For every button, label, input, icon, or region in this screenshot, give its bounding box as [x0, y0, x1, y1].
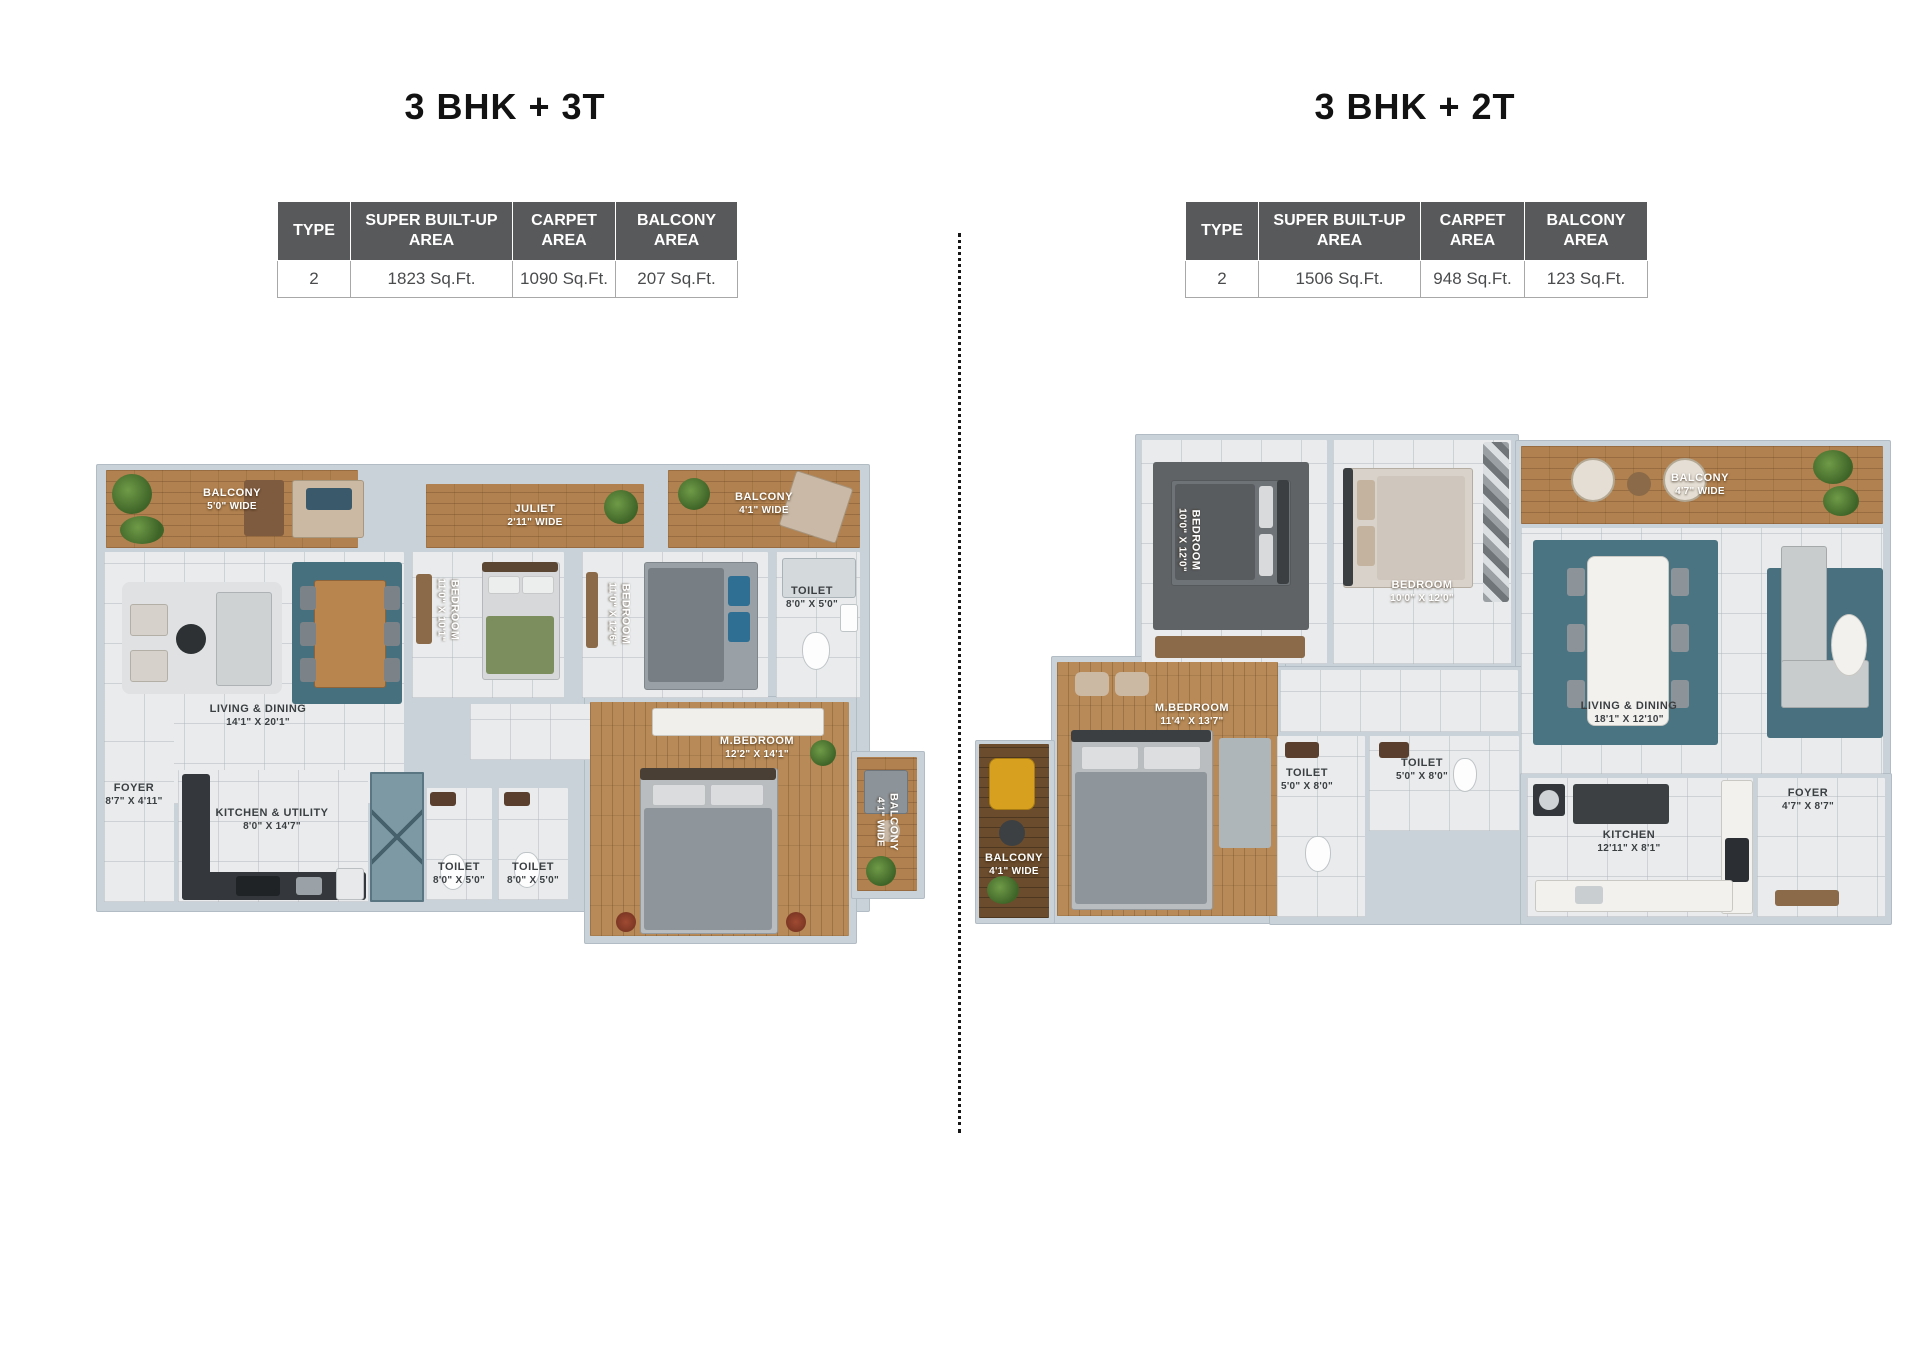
blanket — [1075, 772, 1207, 904]
headboard — [1277, 480, 1289, 584]
cell-carpet: 1090 Sq.Ft. — [513, 261, 616, 298]
label-balcony-top: BALCONY4'7" WIDE — [1620, 471, 1780, 498]
plant — [866, 856, 896, 886]
plant — [1823, 486, 1859, 516]
col-header-type: TYPE — [278, 202, 351, 261]
plant — [1813, 450, 1853, 484]
cell-carpet: 948 Sq.Ft. — [1421, 261, 1525, 298]
pillow — [1259, 486, 1273, 528]
label-master-bedroom: M.BEDROOM11'4" X 13'7" — [1112, 701, 1272, 728]
chair — [384, 622, 400, 646]
tv-cabinet — [586, 572, 598, 648]
cell-balcony: 123 Sq.Ft. — [1525, 261, 1648, 298]
chair — [300, 586, 316, 610]
floor-plan-right: BEDROOM10'0" X 12'0" BEDROOM10'0" X 12'0… — [975, 428, 1893, 950]
stove — [236, 876, 280, 896]
col-header-super-builtup: SUPER BUILT-UP AREA — [351, 202, 513, 261]
rug — [786, 912, 806, 932]
toilet-fixture — [1305, 836, 1331, 872]
toilet-fixture — [802, 632, 830, 670]
chair — [384, 586, 400, 610]
pillow — [728, 576, 750, 606]
col-header-super-builtup: SUPER BUILT-UP AREA — [1259, 202, 1421, 261]
fridge — [336, 868, 364, 900]
blanket — [648, 568, 724, 682]
wardrobe — [1155, 636, 1305, 658]
cell-type: 2 — [1186, 261, 1259, 298]
pillow — [1143, 746, 1201, 770]
plant — [987, 876, 1019, 904]
bench — [1775, 890, 1839, 906]
kitchen-counter — [1573, 784, 1669, 824]
table-row: 2 1823 Sq.Ft. 1090 Sq.Ft. 207 Sq.Ft. — [278, 261, 738, 298]
col-header-carpet: CARPET AREA — [513, 202, 616, 261]
rug — [616, 912, 636, 932]
page-title-right: 3 BHK + 2T — [1160, 86, 1670, 128]
pillow — [1081, 746, 1139, 770]
vanity — [504, 792, 530, 806]
headboard — [1071, 730, 1211, 742]
label-bedroom-1: BEDROOM10'0" X 12'0" — [1175, 508, 1202, 572]
vanity — [430, 792, 456, 806]
label-bedroom-2: BEDROOM10'0" X 12'0" — [1342, 578, 1502, 605]
dresser — [652, 708, 824, 736]
cell-super-builtup: 1506 Sq.Ft. — [1259, 261, 1421, 298]
blanket — [644, 808, 772, 930]
corridor — [1280, 670, 1518, 732]
pillow — [1075, 672, 1109, 696]
label-kitchen-utility: KITCHEN & UTILITY8'0" X 14'7" — [192, 806, 352, 833]
label-toilet-2: TOILET5'0" X 8'0" — [1382, 756, 1462, 783]
dining-table — [314, 580, 386, 688]
pillow — [710, 784, 764, 806]
label-balcony-bottom-right: BALCONY4'1" WIDE — [873, 793, 900, 851]
chair — [384, 658, 400, 682]
armchair — [989, 758, 1035, 810]
pillow — [1115, 672, 1149, 696]
label-living-dining: LIVING & DINING14'1" X 20'1" — [168, 702, 348, 729]
chair — [1567, 624, 1585, 652]
room-toilet-1 — [1277, 736, 1365, 917]
label-balcony-top-left: BALCONY5'0" WIDE — [142, 486, 322, 513]
cell-type: 2 — [278, 261, 351, 298]
label-foyer: FOYER4'7" X 8'7" — [1748, 786, 1868, 813]
label-master-bedroom: M.BEDROOM12'2" X 14'1" — [677, 734, 837, 761]
headboard — [482, 562, 558, 572]
room-foyer — [104, 716, 174, 902]
sink — [1575, 886, 1603, 904]
dashed-divider — [958, 233, 961, 1133]
side-table — [999, 820, 1025, 846]
cell-super-builtup: 1823 Sq.Ft. — [351, 261, 513, 298]
col-header-type: TYPE — [1186, 202, 1259, 261]
pillow — [652, 784, 706, 806]
blanket — [486, 616, 554, 674]
headboard — [640, 768, 776, 780]
table-row: 2 1506 Sq.Ft. 948 Sq.Ft. 123 Sq.Ft. — [1186, 261, 1648, 298]
chair — [300, 658, 316, 682]
stove — [1725, 838, 1749, 882]
sink — [296, 877, 322, 895]
chair — [300, 622, 316, 646]
kitchen-counter — [1535, 880, 1733, 912]
pillow — [1357, 526, 1375, 566]
pillow — [728, 612, 750, 642]
armchair — [130, 650, 168, 682]
pillow — [1259, 534, 1273, 576]
plant — [120, 516, 164, 544]
col-header-balcony: BALCONY AREA — [1525, 202, 1648, 261]
washer-door — [1539, 790, 1559, 810]
rug — [1219, 738, 1271, 848]
cell-balcony: 207 Sq.Ft. — [616, 261, 738, 298]
label-balcony-left: BALCONY4'1" WIDE — [977, 851, 1051, 878]
armchair — [130, 604, 168, 636]
chair — [1567, 568, 1585, 596]
spec-table-right: TYPE SUPER BUILT-UP AREA CARPET AREA BAL… — [1185, 201, 1648, 298]
coffee-table — [176, 624, 206, 654]
page: { "left": { "title": "3 BHK + 3T", "tabl… — [0, 0, 1920, 1366]
label-kitchen: KITCHEN12'11" X 8'1" — [1549, 828, 1709, 855]
pillow — [1357, 480, 1375, 520]
headboard — [1343, 468, 1353, 586]
rattan-chair — [1571, 458, 1615, 502]
label-juliet: JULIET2'11" WIDE — [445, 502, 625, 529]
desk — [416, 574, 432, 644]
pillow — [488, 576, 520, 594]
sofa — [216, 592, 272, 686]
label-living-dining: LIVING & DINING18'1" X 12'10" — [1549, 699, 1709, 726]
label-toilet-top: TOILET8'0" X 5'0" — [762, 584, 862, 611]
pillow — [522, 576, 554, 594]
col-header-balcony: BALCONY AREA — [616, 202, 738, 261]
floor-plan-left: BALCONY5'0" WIDE JULIET2'11" WIDE BALCON… — [96, 464, 928, 946]
spec-table-left: TYPE SUPER BUILT-UP AREA CARPET AREA BAL… — [277, 201, 738, 298]
label-toilet-bottom-2: TOILET8'0" X 5'0" — [483, 860, 583, 887]
blanket — [1377, 476, 1465, 580]
coffee-table — [1831, 614, 1867, 676]
label-toilet-1: TOILET5'0" X 8'0" — [1267, 766, 1347, 793]
col-header-carpet: CARPET AREA — [1421, 202, 1525, 261]
label-bedroom-1: BEDROOM11'0" X 10'1" — [434, 578, 461, 641]
label-balcony-top-right: BALCONY4'1" WIDE — [674, 490, 854, 517]
chair — [1671, 624, 1689, 652]
label-foyer: FOYER8'7" X 4'11" — [79, 781, 189, 808]
label-bedroom-2: BEDROOM11'0" X 12'6" — [605, 582, 632, 645]
page-title-left: 3 BHK + 3T — [250, 86, 760, 128]
vanity — [1285, 742, 1319, 758]
chair — [1671, 568, 1689, 596]
